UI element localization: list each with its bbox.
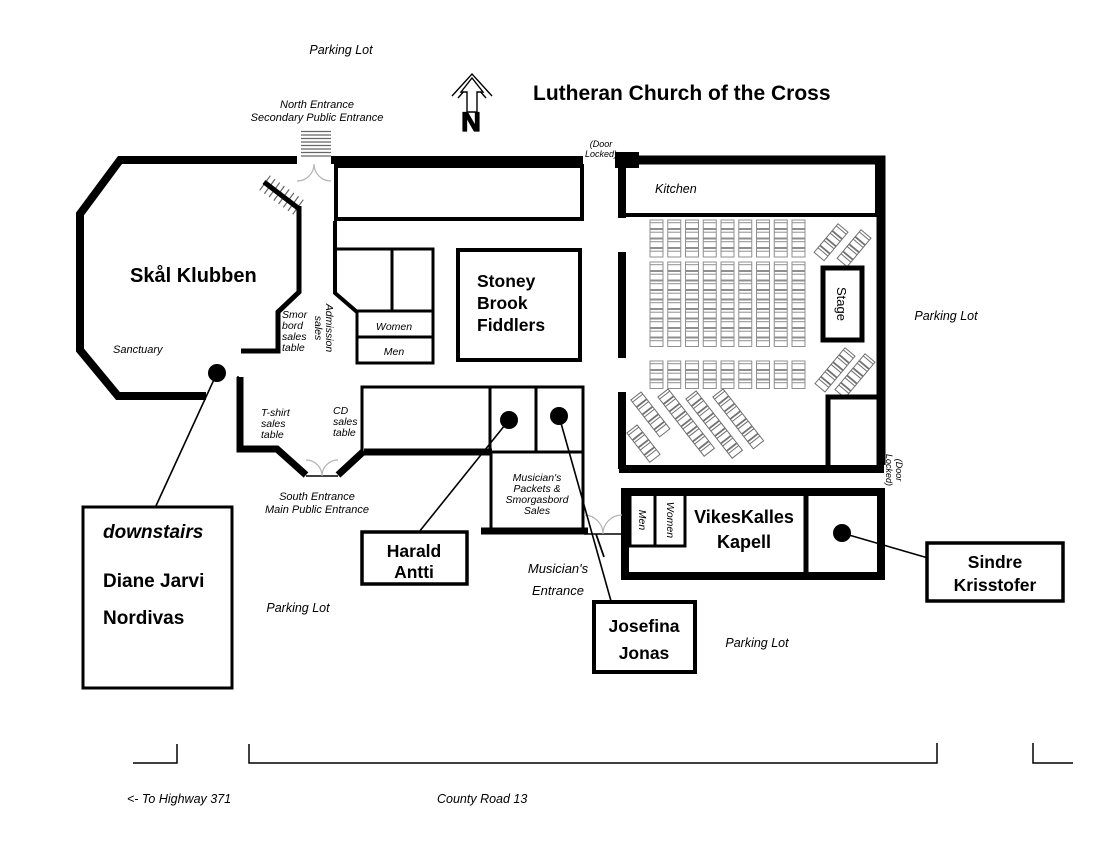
county-road-label: County Road 13: [437, 792, 527, 806]
chair-icon: [703, 371, 716, 380]
harald-line1: Harald: [387, 541, 441, 561]
chair-icon: [774, 291, 787, 300]
tshirt-line3: table: [261, 429, 284, 441]
chair-icon: [703, 361, 716, 370]
chair-icon: [774, 272, 787, 281]
north-compass-icon: N: [452, 74, 492, 137]
chair-icon: [792, 329, 805, 338]
chair-icon: [686, 230, 699, 239]
admission-line2: sales: [312, 316, 324, 341]
north-entrance-steps-icon: [301, 132, 331, 157]
chair-icon: [686, 338, 699, 347]
musicians-entrance-label: Musician's Entrance: [528, 561, 589, 598]
chair-icon: [686, 272, 699, 281]
north-entrance-line2: Secondary Public Entrance: [251, 112, 384, 124]
stoney-brook-label: Stoney Brook Fiddlers: [477, 271, 545, 335]
chair-icon: [792, 239, 805, 248]
chair-icon: [792, 338, 805, 347]
road-lines: [133, 743, 1073, 763]
floor-plan-page: N Lutheran Church of the Cross Parking L…: [0, 0, 1100, 850]
chair-icon: [668, 262, 681, 271]
musicians-entrance-line2: Entrance: [532, 583, 584, 598]
vikeskalles-label: VikesKalles Kapell: [694, 507, 794, 552]
chair-icon: [650, 220, 663, 229]
chair-icon: [686, 300, 699, 309]
chair-icon: [739, 230, 752, 239]
chair-icon: [703, 380, 716, 389]
door-locked-right-line1: (Door: [894, 459, 904, 483]
smorbord-line4: table: [282, 342, 305, 354]
chair-icon: [774, 249, 787, 258]
skal-klubben-label: Skål Klubben: [130, 264, 257, 287]
chair-icon: [668, 300, 681, 309]
kitchen-label: Kitchen: [655, 182, 697, 196]
chair-icon: [650, 262, 663, 271]
chair-icon: [686, 281, 699, 290]
vikeskalles-line1: VikesKalles: [694, 507, 794, 527]
chair-icon: [650, 329, 663, 338]
chair-icon: [650, 272, 663, 281]
stoney-line1: Stoney: [477, 271, 536, 291]
chair-icon: [792, 281, 805, 290]
packets-line4: Sales: [524, 505, 551, 517]
chair-icon: [650, 380, 663, 389]
door-locked-label-top: (Door Locked): [585, 139, 617, 159]
chair-icon: [650, 239, 663, 248]
chair-icon: [721, 281, 734, 290]
chair-icon: [686, 249, 699, 258]
chair-icon: [686, 371, 699, 380]
downstairs-line1: Diane Jarvi: [103, 571, 204, 592]
north-entrance-line1: North Entrance: [280, 99, 354, 111]
chair-icon: [774, 371, 787, 380]
diagonal-chair-rows: [627, 389, 764, 462]
chair-icon: [650, 291, 663, 300]
chair-icon: [668, 361, 681, 370]
chair-icon: [721, 361, 734, 370]
chair-icon: [757, 361, 770, 370]
room-north-corridor: [336, 166, 582, 219]
restroom-women-label: Women: [376, 321, 412, 333]
kapell-women-label: Women: [664, 502, 676, 538]
chair-icon: [774, 262, 787, 271]
cd-line3: table: [333, 427, 356, 439]
chair-icon: [721, 310, 734, 319]
chair-icon: [703, 329, 716, 338]
chair-icon: [792, 262, 805, 271]
chair-icon: [739, 281, 752, 290]
south-entrance-label: South Entrance Main Public Entrance: [265, 491, 369, 516]
chair-icon: [792, 272, 805, 281]
sindre-line2: Krisstofer: [954, 575, 1037, 595]
chair-icon: [686, 310, 699, 319]
chair-icon: [774, 361, 787, 370]
chair-icon: [721, 220, 734, 229]
chair-icon: [757, 220, 770, 229]
chair-icon: [757, 338, 770, 347]
chair-icon: [757, 291, 770, 300]
chair-icon: [686, 239, 699, 248]
chair-icon: [757, 230, 770, 239]
chair-icon: [703, 239, 716, 248]
chair-icon: [792, 249, 805, 258]
compass-n-letter: N: [461, 107, 481, 137]
chair-icon: [739, 220, 752, 229]
chair-icon: [703, 220, 716, 229]
sanctuary-label: Sanctuary: [113, 344, 164, 356]
chair-icon: [668, 319, 681, 328]
parking-lot-label-bottom-left: Parking Lot: [266, 601, 330, 615]
musicians-packets-label: Musician's Packets & Smorgasbord Sales: [505, 472, 569, 517]
admission-sales-label: Admission sales: [312, 303, 335, 353]
door-locked-label-right: (Door Locked): [884, 454, 904, 486]
chair-icon: [703, 300, 716, 309]
chair-icon: [774, 310, 787, 319]
chair-icon: [721, 300, 734, 309]
chair-icon: [668, 249, 681, 258]
parking-lot-label-bottom-mid: Parking Lot: [725, 636, 789, 650]
chair-icon: [668, 338, 681, 347]
chair-icon: [774, 329, 787, 338]
chair-icon: [739, 300, 752, 309]
door-locked-right-line2: Locked): [884, 454, 894, 486]
chair-icon: [792, 300, 805, 309]
chair-icon: [757, 371, 770, 380]
chair-icon: [650, 281, 663, 290]
wall-admission-corridor: [335, 221, 357, 312]
chair-icon: [650, 230, 663, 239]
chair-icon: [757, 281, 770, 290]
chair-icon: [774, 281, 787, 290]
chair-icon: [757, 300, 770, 309]
chair-icon: [703, 281, 716, 290]
chair-icon: [721, 262, 734, 271]
room-cd-sales-block: [362, 387, 583, 452]
chair-icon: [703, 249, 716, 258]
chair-icon: [721, 249, 734, 258]
chair-icon: [739, 371, 752, 380]
musicians-entrance-line1: Musician's: [528, 561, 589, 576]
callout-dot-harald: [500, 411, 518, 429]
chair-icon: [774, 319, 787, 328]
chair-icon: [739, 310, 752, 319]
chair-icon: [792, 371, 805, 380]
harald-line2: Antti: [394, 562, 434, 582]
cd-sales-label: CD sales table: [333, 405, 358, 439]
north-entrance-door-arcs: [297, 164, 331, 181]
chair-icon: [721, 291, 734, 300]
callout-line-harald: [419, 420, 509, 532]
page-title: Lutheran Church of the Cross: [533, 82, 831, 105]
chair-icon: [650, 319, 663, 328]
chair-icon: [757, 249, 770, 258]
chair-icon: [739, 291, 752, 300]
stage-label: Stage: [834, 287, 849, 321]
door-locked-top-line2: Locked): [585, 149, 617, 159]
downstairs-tag: downstairs: [103, 522, 203, 543]
chair-icon: [668, 310, 681, 319]
south-entrance-line1: South Entrance: [279, 491, 355, 503]
downstairs-line2: Nordivas: [103, 608, 184, 629]
chair-icon: [757, 239, 770, 248]
door-locked-top-line1: (Door: [590, 139, 614, 149]
chair-icon: [650, 310, 663, 319]
chair-icon: [650, 300, 663, 309]
chair-icon: [792, 291, 805, 300]
chair-icon: [757, 310, 770, 319]
chair-icon: [739, 338, 752, 347]
chair-icon: [668, 220, 681, 229]
chair-icon: [650, 338, 663, 347]
chair-icon: [668, 371, 681, 380]
josefina-line1: Josefina: [609, 616, 680, 636]
chair-icon: [686, 361, 699, 370]
chair-icon: [668, 281, 681, 290]
josefina-line2: Jonas: [619, 643, 670, 663]
chair-icon: [792, 361, 805, 370]
chair-icon: [650, 361, 663, 370]
chair-icon: [703, 310, 716, 319]
chair-icon: [703, 262, 716, 271]
stoney-line2: Brook: [477, 293, 528, 313]
callout-dot-josefina: [550, 407, 568, 425]
chair-icon: [792, 220, 805, 229]
chair-icon: [703, 291, 716, 300]
chair-icon: [721, 329, 734, 338]
chair-icon: [686, 291, 699, 300]
chair-icon: [703, 230, 716, 239]
chair-icon: [739, 361, 752, 370]
chair-icon: [668, 291, 681, 300]
floor-plan-canvas: N Lutheran Church of the Cross Parking L…: [0, 0, 1100, 850]
chair-icon: [739, 249, 752, 258]
chair-icon: [757, 319, 770, 328]
chair-icon: [650, 249, 663, 258]
chair-icon: [703, 272, 716, 281]
chair-icon: [668, 230, 681, 239]
south-entrance-line2: Main Public Entrance: [265, 504, 369, 516]
south-entrance-door-arcs: [306, 460, 338, 476]
chair-icon: [703, 338, 716, 347]
chair-icon: [686, 319, 699, 328]
chair-icon: [757, 272, 770, 281]
stoney-line3: Fiddlers: [477, 315, 545, 335]
chair-icon: [757, 262, 770, 271]
parking-lot-label-top: Parking Lot: [309, 43, 373, 57]
chair-icon: [721, 272, 734, 281]
chair-icon: [721, 380, 734, 389]
chair-icon: [739, 239, 752, 248]
chair-icon: [721, 338, 734, 347]
chair-icon: [668, 272, 681, 281]
chair-icon: [792, 230, 805, 239]
chair-icon: [703, 319, 716, 328]
sindre-line1: Sindre: [968, 552, 1023, 572]
chair-icon: [792, 310, 805, 319]
chair-icon: [792, 380, 805, 389]
chair-icon: [792, 319, 805, 328]
chair-icon: [739, 380, 752, 389]
chair-icon: [686, 262, 699, 271]
chair-icon: [774, 300, 787, 309]
parking-lot-label-right: Parking Lot: [914, 309, 978, 323]
chair-icon: [668, 380, 681, 389]
north-entrance-label: North Entrance Secondary Public Entrance: [251, 99, 384, 124]
chair-icon: [757, 329, 770, 338]
chair-icon: [668, 329, 681, 338]
highway-label: <- To Highway 371: [127, 792, 231, 806]
chair-icon: [721, 239, 734, 248]
chair-icon: [739, 262, 752, 271]
chair-icon: [686, 380, 699, 389]
chair-icon: [774, 230, 787, 239]
chair-icon: [721, 371, 734, 380]
callout-dot-downstairs: [208, 364, 226, 382]
chair-icon: [774, 338, 787, 347]
chair-icon: [686, 329, 699, 338]
room-hall-corner: [828, 397, 879, 465]
audience-chair-rows: [650, 220, 805, 389]
smorbord-sales-label: Smor bord sales table: [282, 309, 308, 354]
chair-icon: [739, 329, 752, 338]
chair-icon: [739, 319, 752, 328]
chair-icon: [774, 220, 787, 229]
chair-icon: [721, 319, 734, 328]
callout-dot-sindre: [833, 524, 851, 542]
chair-icon: [721, 230, 734, 239]
chair-icon: [757, 380, 770, 389]
chair-icon: [668, 239, 681, 248]
chair-icon: [686, 220, 699, 229]
chair-icon: [650, 371, 663, 380]
chair-icon: [774, 239, 787, 248]
kapell-men-label: Men: [636, 510, 648, 531]
tshirt-sales-label: T-shirt sales table: [261, 407, 291, 441]
chair-icon: [774, 380, 787, 389]
chair-icon: [739, 272, 752, 281]
vikeskalles-line2: Kapell: [717, 532, 771, 552]
restroom-men-label: Men: [384, 346, 405, 358]
